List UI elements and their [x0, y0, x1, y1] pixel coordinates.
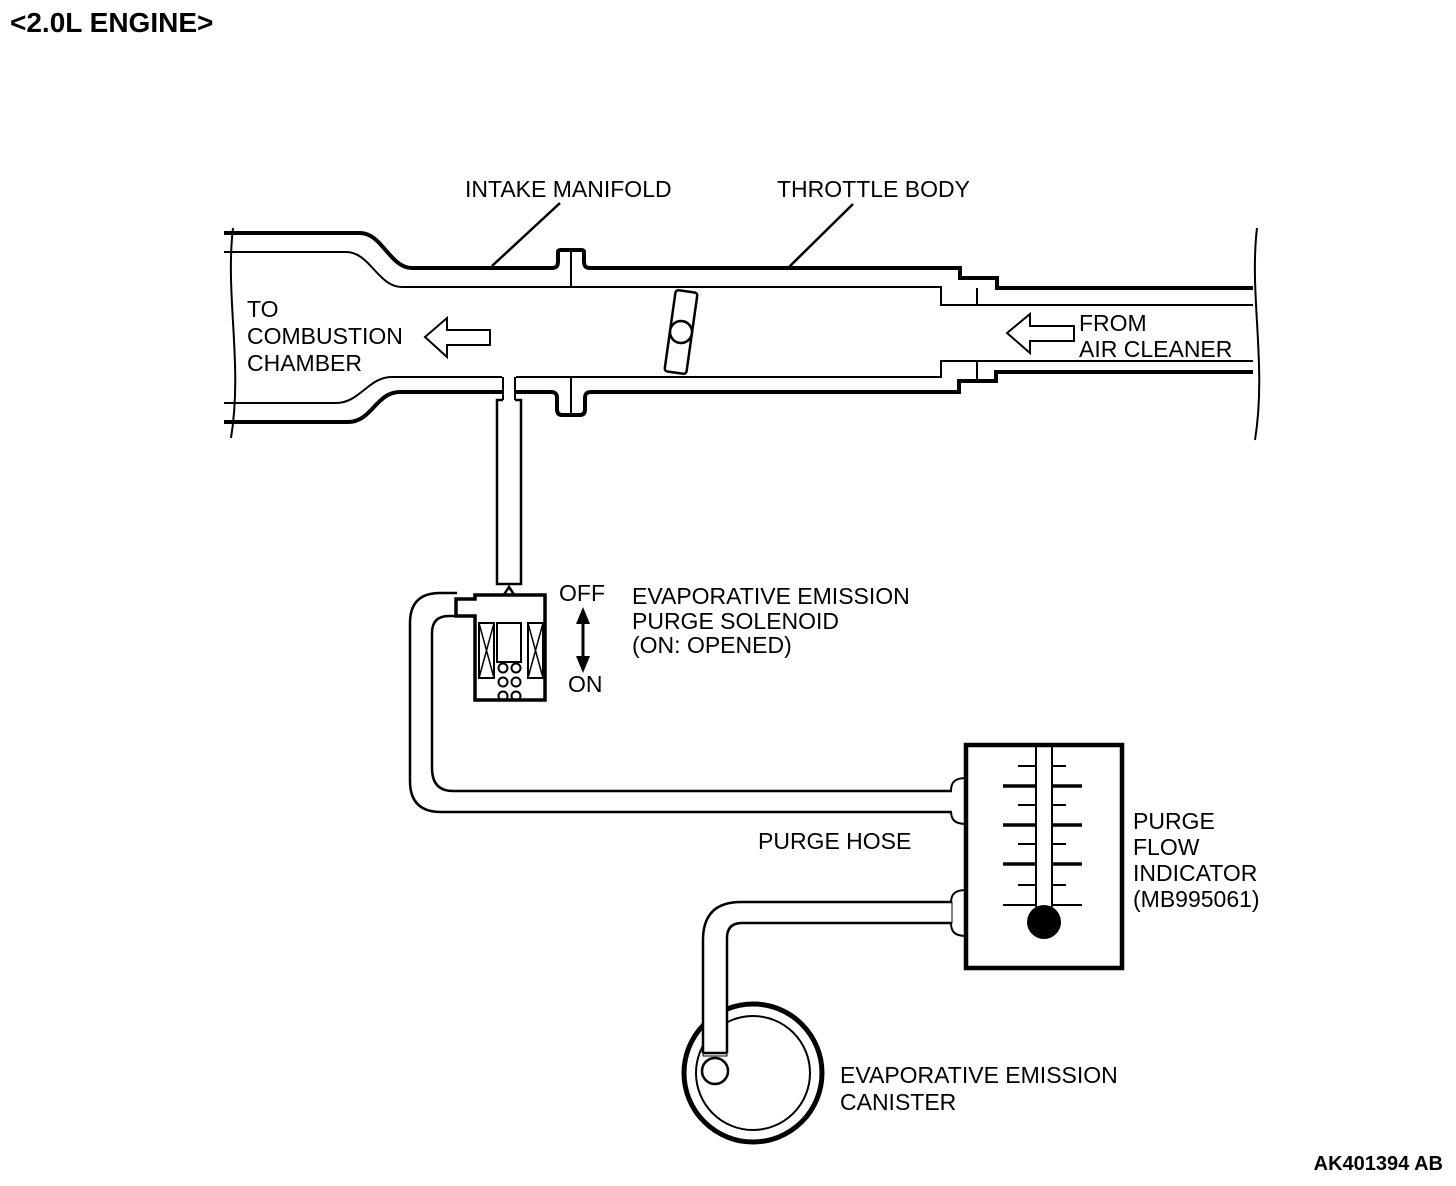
evap-purge-system-diagram: <2.0L ENGINE> INTAKE MANIFOLD THROTTLE B… [0, 0, 1456, 1186]
combustion-chamber-label: TO COMBUSTION CHAMBER [247, 296, 403, 376]
page-title: <2.0L ENGINE> [10, 7, 213, 38]
svg-text:COMBUSTION: COMBUSTION [247, 323, 403, 349]
duct-inner-bottom [224, 361, 1253, 403]
solenoid-plunger [497, 623, 521, 662]
svg-text:INDICATOR: INDICATOR [1133, 860, 1257, 886]
service-manual-diagram: <2.0L ENGINE> INTAKE MANIFOLD THROTTLE B… [0, 0, 1456, 1186]
flow-arrow-right [1007, 314, 1074, 353]
figure-code: AK401394 AB [1314, 1153, 1443, 1175]
throttle-body-leader [788, 204, 853, 268]
indicator-float-ball [1027, 905, 1061, 939]
svg-text:EVAPORATIVE EMISSION: EVAPORATIVE EMISSION [632, 583, 910, 609]
svg-text:CHAMBER: CHAMBER [247, 350, 362, 376]
purge-tap-channel [503, 377, 515, 400]
throttle-body-label: THROTTLE BODY [777, 176, 970, 202]
canister-port [702, 1058, 728, 1084]
duct-outer-top [224, 233, 1253, 288]
air-cleaner-label: FROM AIR CLEANER [1079, 310, 1232, 362]
duct-inner-top [224, 252, 1253, 305]
break-line-right [1255, 228, 1259, 440]
arrowhead-up [576, 607, 590, 624]
svg-text:TO: TO [247, 296, 279, 322]
purge-flow-indicator-label: PURGE FLOW INDICATOR (MB995061) [1133, 808, 1260, 912]
intake-manifold-label: INTAKE MANIFOLD [465, 176, 672, 202]
break-line-left [231, 228, 235, 438]
intake-manifold-leader [492, 203, 560, 266]
purge-pipe [497, 377, 521, 624]
svg-text:PURGE SOLENOID: PURGE SOLENOID [632, 608, 839, 634]
svg-text:EVAPORATIVE EMISSION: EVAPORATIVE EMISSION [840, 1062, 1118, 1088]
off-on-arrow [576, 607, 590, 673]
svg-text:FROM: FROM [1079, 310, 1147, 336]
flow-arrow-left [425, 318, 490, 357]
svg-text:FLOW: FLOW [1133, 834, 1200, 860]
svg-text:(MB995061): (MB995061) [1133, 886, 1260, 912]
svg-text:CANISTER: CANISTER [840, 1089, 956, 1115]
svg-text:AIR CLEANER: AIR CLEANER [1079, 336, 1232, 362]
solenoid-off-label: OFF [559, 580, 605, 606]
svg-text:PURGE: PURGE [1133, 808, 1215, 834]
purge-hose-label: PURGE HOSE [758, 828, 911, 854]
purge-flow-indicator [951, 745, 1122, 968]
throttle-valve [664, 290, 697, 374]
solenoid-on-label: ON [568, 671, 603, 697]
evap-canister-label: EVAPORATIVE EMISSION CANISTER [840, 1062, 1118, 1115]
svg-text:(ON: OPENED): (ON: OPENED) [632, 632, 792, 658]
purge-solenoid-label: EVAPORATIVE EMISSION PURGE SOLENOID (ON:… [632, 583, 910, 658]
purge-pipe-body [497, 400, 521, 584]
